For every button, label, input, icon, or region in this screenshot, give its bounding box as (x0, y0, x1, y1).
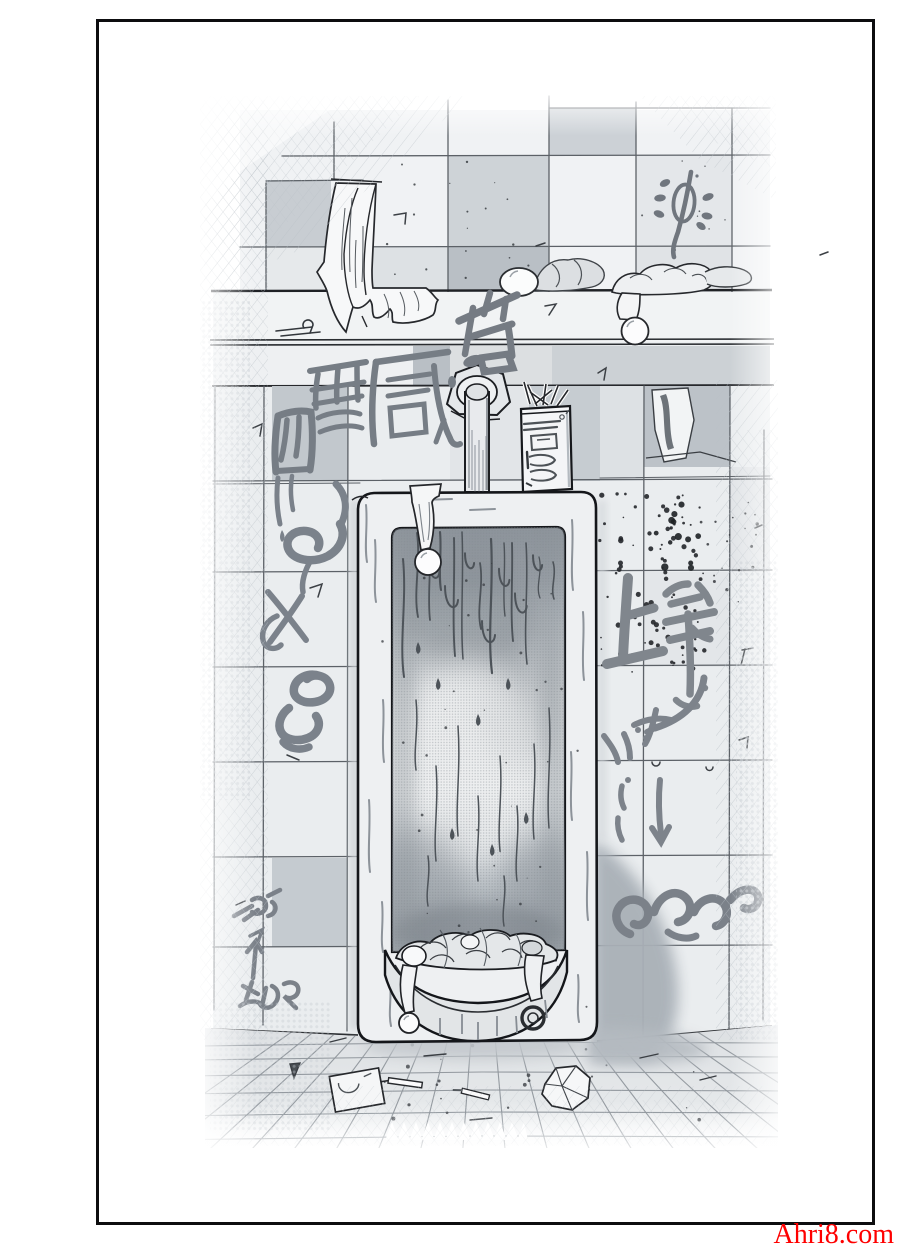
svg-text:Ahri8.com: Ahri8.com (773, 1219, 894, 1250)
